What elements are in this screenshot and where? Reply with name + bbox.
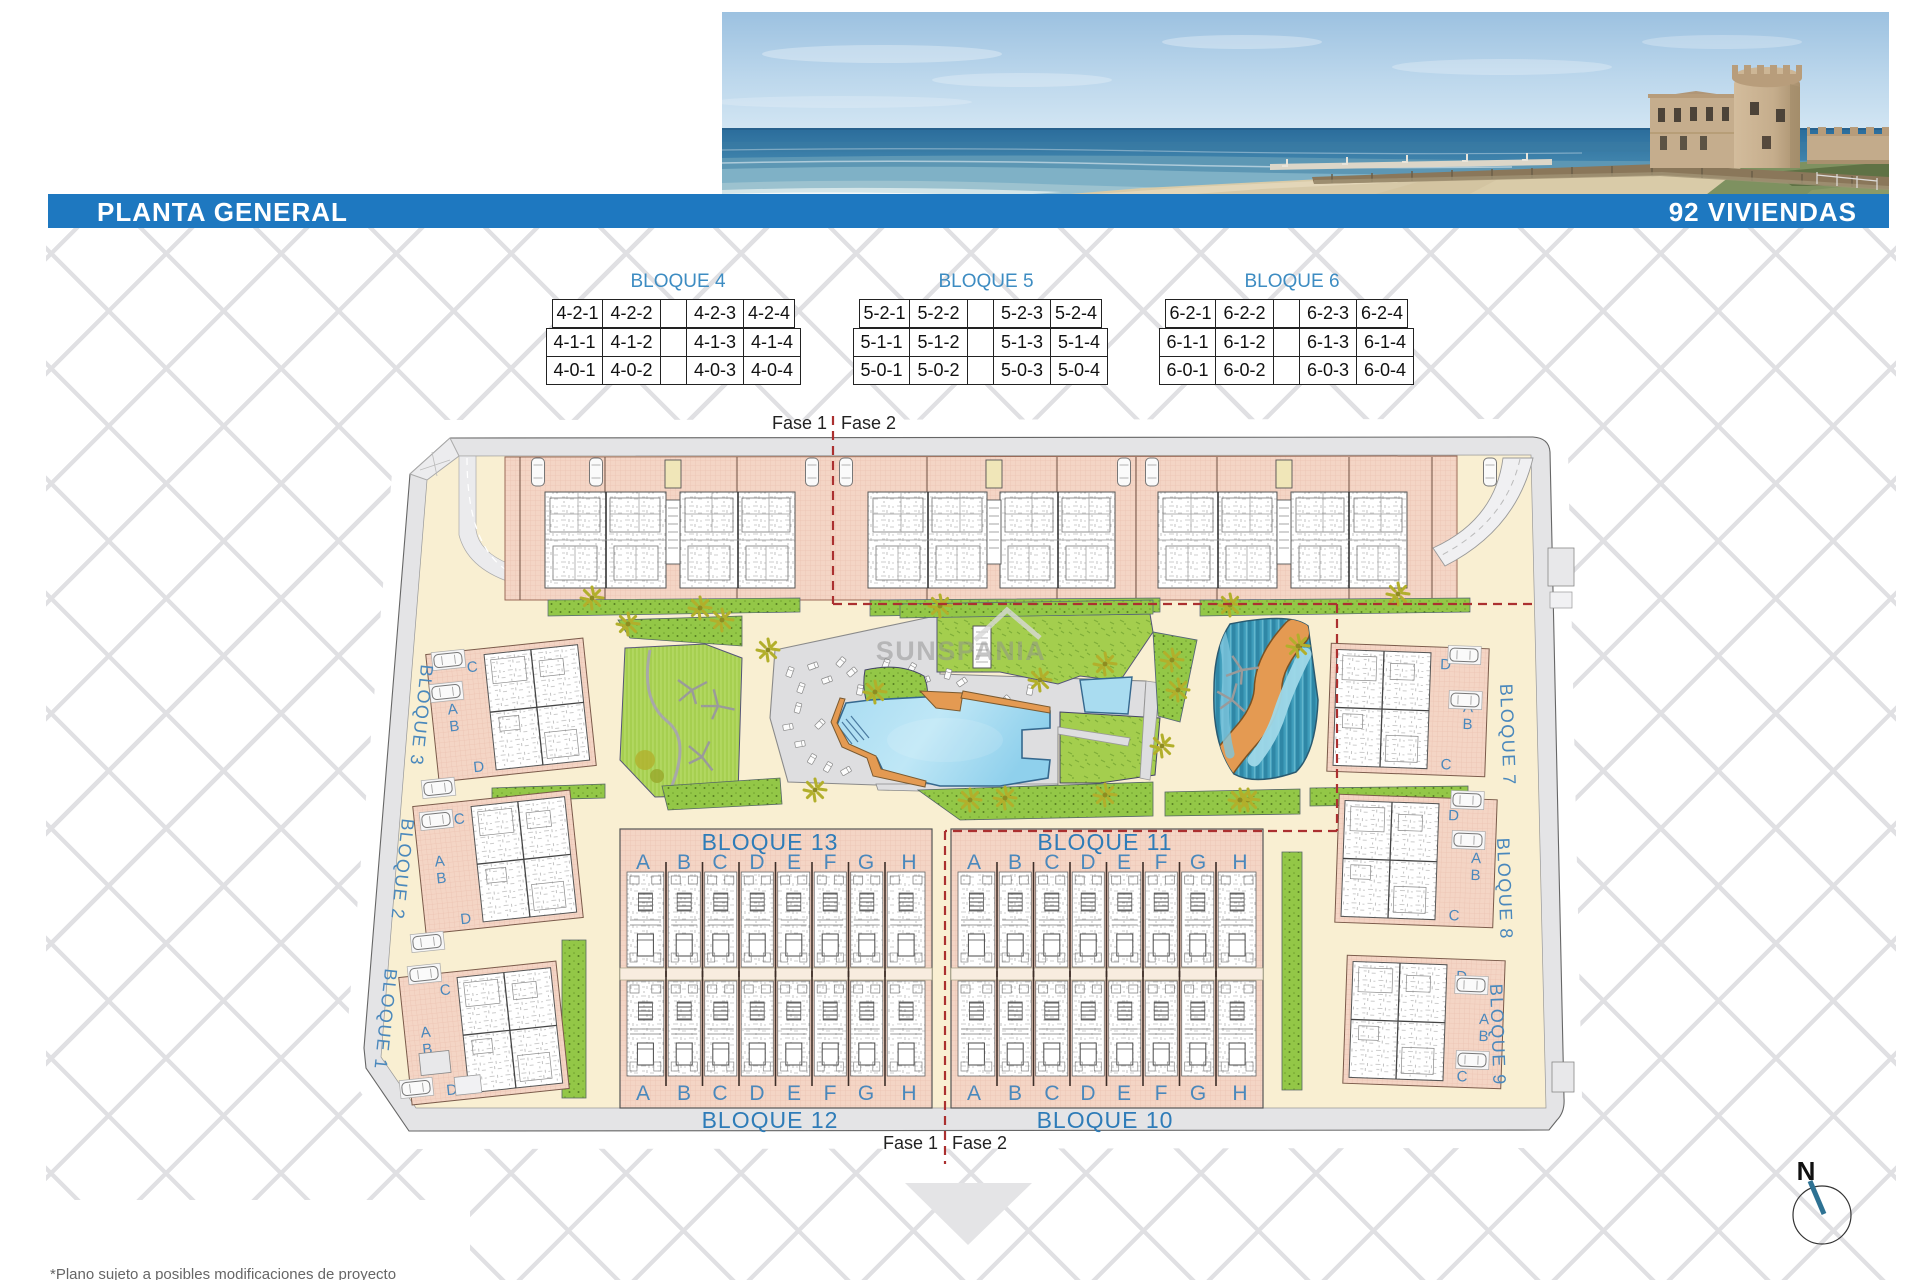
svg-text:C: C: [1440, 756, 1452, 773]
svg-text:B: B: [436, 870, 448, 888]
svg-text:A: A: [636, 851, 650, 874]
svg-text:E: E: [1117, 1082, 1131, 1105]
svg-text:A: A: [967, 851, 981, 874]
svg-text:G: G: [1190, 851, 1206, 874]
svg-text:BLOQUE 13: BLOQUE 13: [702, 829, 839, 855]
svg-text:Fase 2: Fase 2: [952, 1133, 1007, 1153]
svg-text:Fase 2: Fase 2: [841, 413, 896, 433]
svg-text:E: E: [787, 1082, 801, 1105]
svg-text:B: B: [1478, 1028, 1489, 1045]
svg-text:C: C: [466, 658, 479, 676]
svg-text:D: D: [749, 1082, 764, 1105]
svg-text:C: C: [453, 810, 466, 828]
svg-text:B: B: [677, 851, 691, 874]
svg-text:F: F: [1155, 1082, 1168, 1105]
svg-text:BLOQUE 12: BLOQUE 12: [702, 1107, 839, 1133]
svg-text:B: B: [449, 718, 461, 736]
svg-text:A: A: [1471, 850, 1482, 867]
svg-text:A: A: [967, 1082, 981, 1105]
svg-text:C: C: [1456, 1068, 1468, 1085]
svg-text:H: H: [1232, 1082, 1247, 1105]
svg-text:SUNSPANIA: SUNSPANIA: [876, 636, 1047, 666]
svg-text:G: G: [858, 1082, 874, 1105]
svg-text:C: C: [1044, 1082, 1059, 1105]
svg-text:D: D: [1448, 807, 1460, 824]
svg-text:H: H: [1232, 851, 1247, 874]
svg-text:G: G: [858, 851, 874, 874]
svg-text:B: B: [1470, 867, 1481, 884]
svg-text:BLOQUE 9: BLOQUE 9: [1486, 983, 1510, 1086]
svg-text:BLOQUE 7: BLOQUE 7: [1496, 683, 1520, 786]
svg-text:C: C: [712, 1082, 727, 1105]
svg-text:B: B: [677, 1082, 691, 1105]
svg-text:BLOQUE 8: BLOQUE 8: [1493, 837, 1517, 940]
svg-text:Fase 1: Fase 1: [772, 413, 827, 433]
svg-text:F: F: [824, 1082, 837, 1105]
svg-text:C: C: [1448, 907, 1460, 924]
svg-text:B: B: [1008, 1082, 1022, 1105]
svg-text:BLOQUE 11: BLOQUE 11: [1037, 829, 1172, 855]
svg-text:D: D: [460, 910, 473, 928]
svg-text:A: A: [447, 701, 459, 719]
svg-text:A: A: [434, 853, 446, 871]
svg-text:H: H: [901, 851, 916, 874]
svg-text:BLOQUE 10: BLOQUE 10: [1037, 1107, 1174, 1133]
svg-text:H: H: [901, 1082, 916, 1105]
svg-text:G: G: [1190, 1082, 1206, 1105]
svg-text:C: C: [439, 981, 452, 999]
svg-text:D: D: [473, 758, 486, 776]
svg-text:Fase 1: Fase 1: [883, 1133, 938, 1153]
svg-text:D: D: [1080, 1082, 1095, 1105]
svg-text:B: B: [1462, 716, 1473, 733]
svg-text:N: N: [1797, 1156, 1816, 1186]
svg-text:A: A: [636, 1082, 650, 1105]
svg-text:A: A: [420, 1024, 432, 1042]
svg-text:B: B: [1008, 851, 1022, 874]
